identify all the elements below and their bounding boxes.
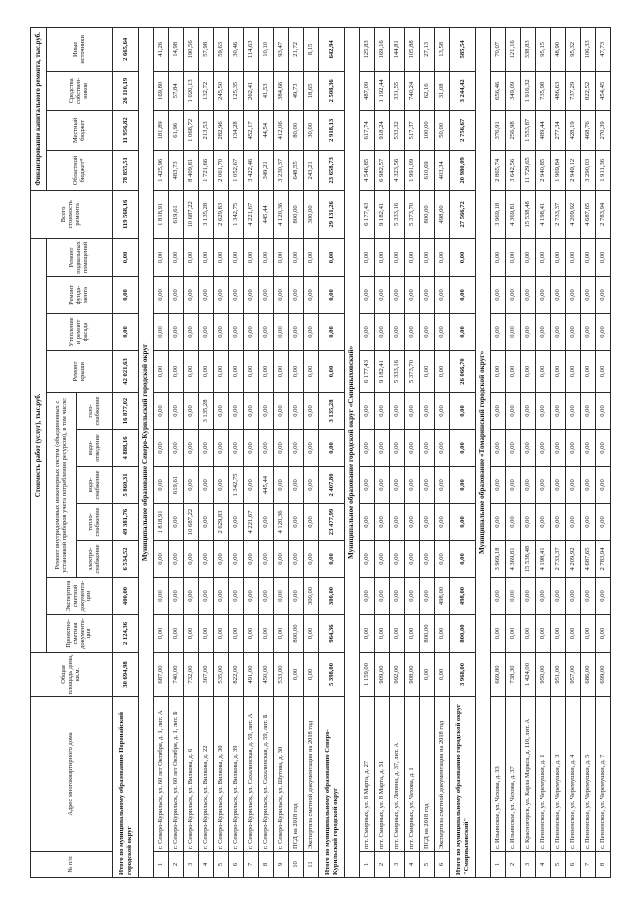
value-cell: 800,00 — [420, 190, 435, 238]
value-cell: 0,00 — [319, 351, 345, 393]
row-address: пгт. Смирных, ул. 8 Марта, д. 27 — [360, 697, 375, 852]
row-number: 4 — [536, 852, 551, 878]
value-cell: 0,00 — [199, 541, 214, 578]
value-cell: 0,00 — [169, 351, 184, 393]
col-header-total: Всего стоимость ремонта — [31, 190, 113, 238]
value-cell: 0,00 — [244, 238, 259, 276]
row-number: 4 — [405, 852, 420, 878]
value-cell: 0,00 — [304, 430, 319, 467]
value-cell: 4 120,36 — [274, 190, 289, 238]
value-cell: 0,00 — [229, 578, 244, 615]
col-header-num: № п/п — [31, 852, 113, 878]
value-cell: 0,00 — [390, 578, 405, 615]
value-cell: 0,00 — [184, 314, 199, 351]
value-cell: 4 369,81 — [506, 190, 521, 238]
data-row: 9г. Северо-Курильск, ул. Шутова, д. 3053… — [274, 27, 289, 877]
value-cell: 0,00 — [596, 615, 611, 653]
value-cell: 49,73 — [289, 71, 304, 110]
data-row: 3с. Красногорск, ул. Карла Маркса, д. 11… — [521, 27, 536, 877]
value-cell: 0,00 — [304, 277, 319, 314]
value-cell: 3 290,03 — [581, 150, 596, 190]
value-cell: 0,00 — [259, 578, 274, 615]
data-row: 4г. Северо-Курильск, ул. Вилкова, д. 223… — [199, 27, 214, 877]
value-cell: 0,00 — [184, 393, 199, 430]
data-row: 6Экспертиза сметной документации на 2018… — [435, 27, 450, 877]
value-cell: 0,00 — [304, 238, 319, 276]
value-cell: 2 407,80 — [319, 467, 345, 504]
col-header-water-disposal: водо-отведение — [77, 430, 113, 467]
value-cell: 0,00 — [274, 467, 289, 504]
value-cell: 0,00 — [551, 578, 566, 615]
col-header-psd: Проектно-сметная документа-ция — [47, 615, 113, 653]
value-cell: 23 477,99 — [319, 504, 345, 541]
value-cell: 0,00 — [420, 393, 435, 430]
value-cell: 0,00 — [274, 238, 289, 276]
value-cell: 0,00 — [229, 277, 244, 314]
value-cell: 0,00 — [450, 467, 476, 504]
value-cell: 4 221,67 — [244, 190, 259, 238]
value-cell: 0,00 — [169, 314, 184, 351]
value-cell: 0,00 — [491, 578, 506, 615]
value-cell: 2 124,36 — [113, 615, 139, 653]
col-header-facade: Утепление и ремонт фасада — [47, 314, 113, 351]
value-cell: 0,00 — [214, 238, 229, 276]
value-cell: 1 020,13 — [184, 71, 199, 110]
value-cell: 3 230,37 — [274, 150, 289, 190]
value-cell: 0,00 — [581, 615, 596, 653]
value-cell: 918,24 — [375, 110, 390, 150]
value-cell: 5 373,70 — [405, 190, 420, 238]
value-cell: 0,00 — [420, 653, 435, 697]
value-cell: 0,00 — [289, 238, 304, 276]
value-cell: 535,00 — [214, 653, 229, 697]
value-cell: 93,47 — [274, 27, 289, 71]
value-cell: 498,00 — [435, 190, 450, 238]
value-cell: 0,00 — [199, 430, 214, 467]
value-cell: 2 756,67 — [450, 110, 476, 150]
value-cell: 0,00 — [154, 430, 169, 467]
value-cell: 10 687,22 — [184, 190, 199, 238]
value-cell: 13,58 — [435, 27, 450, 71]
value-cell: 0,00 — [521, 578, 536, 615]
value-cell: 0,00 — [596, 238, 611, 276]
section-label: Муниципальное образование «Томаринский г… — [476, 27, 491, 877]
value-cell: 0,00 — [169, 430, 184, 467]
value-cell: 14,98 — [169, 27, 184, 71]
value-cell: 428,19 — [566, 110, 581, 150]
value-cell: 1 342,75 — [229, 467, 244, 504]
value-cell: 0,00 — [229, 430, 244, 467]
row-address: пгт. Смирных, ул. Ленина, д. 37, лит. А — [390, 697, 405, 852]
value-cell: 0,00 — [244, 467, 259, 504]
value-cell: 0,00 — [566, 238, 581, 276]
value-cell: 6 177,43 — [360, 190, 375, 238]
value-cell: 1 425,96 — [154, 150, 169, 190]
value-cell: 0,00 — [521, 615, 536, 653]
value-cell: 0,00 — [435, 615, 450, 653]
value-cell: 27,13 — [420, 27, 435, 71]
value-cell: 1 159,00 — [360, 653, 375, 697]
value-cell: 0,00 — [521, 314, 536, 351]
totals-label: Итого по муниципальному образованию Севе… — [319, 697, 345, 878]
value-cell: 245,50 — [214, 71, 229, 110]
value-cell: 0,00 — [506, 467, 521, 504]
col-header-basement: Ремонт подвальных помещений — [47, 238, 113, 276]
rotated-table-wrapper: № п/п Адрес многоквартирного дома Общая … — [30, 28, 610, 878]
value-cell: 0,00 — [184, 277, 199, 314]
value-cell: 0,00 — [581, 467, 596, 504]
value-cell: 0,00 — [304, 541, 319, 578]
row-number: 6 — [229, 852, 244, 878]
data-row: 2г. Северо-Курильск, ул. 60 лет Октября,… — [169, 27, 184, 877]
value-cell: 0,00 — [360, 467, 375, 504]
value-cell: 0,00 — [596, 430, 611, 467]
value-cell: 61,96 — [169, 110, 184, 150]
value-cell: 732,00 — [184, 653, 199, 697]
row-address: г. Северо-Курильск, ул. Сахалинская, д. … — [259, 697, 274, 852]
value-cell: 0,00 — [184, 430, 199, 467]
value-cell: 0,00 — [390, 430, 405, 467]
value-cell: 619,61 — [169, 467, 184, 504]
value-cell: 0,00 — [289, 314, 304, 351]
value-cell: 0,00 — [551, 314, 566, 351]
value-cell: 8 409,81 — [184, 150, 199, 190]
value-cell: 0,00 — [596, 467, 611, 504]
value-cell: 3 642,56 — [506, 150, 521, 190]
value-cell: 0,00 — [450, 541, 476, 578]
value-cell: 95,32 — [566, 27, 581, 71]
value-cell: 0,00 — [154, 467, 169, 504]
value-cell: 2 865,74 — [491, 150, 506, 190]
value-cell: 0,00 — [450, 238, 476, 276]
value-cell: 0,00 — [596, 393, 611, 430]
data-row: 5с. Пензенское, ул. Черемушки, д. 3951,0… — [551, 27, 566, 877]
value-cell: 735,98 — [536, 71, 551, 110]
value-cell: 16 877,02 — [113, 393, 139, 430]
value-cell: 0,00 — [154, 541, 169, 578]
value-cell: 0,00 — [169, 578, 184, 615]
value-cell: 3 969,18 — [491, 190, 506, 238]
totals-row: Итого по муниципальному образованию горо… — [450, 27, 476, 877]
value-cell: 0,00 — [566, 504, 581, 541]
value-cell: 21,72 — [289, 27, 304, 71]
value-cell: 10 687,22 — [184, 504, 199, 541]
row-address: г. Северо-Курильск, ул. Вилкова, д. 6 — [184, 697, 199, 852]
value-cell: 4 120,36 — [274, 504, 289, 541]
value-cell: 0,00 — [435, 393, 450, 430]
value-cell: 15 538,48 — [521, 190, 536, 238]
value-cell: 0,00 — [289, 277, 304, 314]
value-cell: 105,88 — [405, 27, 420, 71]
col-group-engineering: Ремонт внутридомовых инженерных систем (… — [47, 393, 77, 578]
value-cell: 1 052,67 — [229, 150, 244, 190]
value-cell: 0,00 — [360, 238, 375, 276]
value-cell: 0,00 — [184, 615, 199, 653]
value-cell: 0,00 — [491, 238, 506, 276]
value-cell: 0,00 — [420, 504, 435, 541]
value-cell: 0,00 — [405, 504, 420, 541]
value-cell: 4 221,67 — [244, 504, 259, 541]
value-cell: 0,00 — [405, 393, 420, 430]
data-row: 8г. Северо-Курильск, ул. Сахалинская, д.… — [259, 27, 274, 877]
value-cell: 533,00 — [274, 653, 289, 697]
value-cell: 0,00 — [289, 541, 304, 578]
value-cell: 610,69 — [420, 150, 435, 190]
value-cell: 331,55 — [390, 71, 405, 110]
table-header: № п/п Адрес многоквартирного дома Общая … — [31, 27, 113, 877]
row-address: с. Ильинское, ул. Чехова, д. 33 — [491, 697, 506, 852]
value-cell: 800,00 — [450, 615, 476, 653]
value-cell: 300,00 — [304, 578, 319, 615]
value-cell: 0,00 — [375, 615, 390, 653]
value-cell: 0,00 — [184, 238, 199, 276]
value-cell: 0,00 — [491, 314, 506, 351]
value-cell: 3 135,28 — [199, 190, 214, 238]
value-cell: 0,00 — [506, 277, 521, 314]
data-row: 1пгт. Смирных, ул. 8 Марта, д. 271 159,0… — [360, 27, 375, 877]
value-cell: 483,73 — [169, 150, 184, 190]
value-cell: 0,00 — [274, 578, 289, 615]
value-cell: 0,00 — [274, 541, 289, 578]
value-cell: 0,00 — [375, 541, 390, 578]
value-cell: 0,00 — [420, 314, 435, 351]
value-cell: 0,00 — [274, 277, 289, 314]
value-cell: 367,00 — [199, 653, 214, 697]
value-cell: 1 818,91 — [154, 190, 169, 238]
value-cell: 0,00 — [360, 504, 375, 541]
value-cell: 822,52 — [581, 71, 596, 110]
value-cell: 0,00 — [405, 314, 420, 351]
value-cell: 0,00 — [360, 541, 375, 578]
value-cell: 0,00 — [199, 277, 214, 314]
value-cell: 486,63 — [551, 71, 566, 110]
value-cell: 1 916,32 — [521, 71, 536, 110]
value-cell: 0,00 — [199, 467, 214, 504]
value-cell: 0,00 — [214, 467, 229, 504]
value-cell: 0,00 — [405, 277, 420, 314]
value-cell: 23 658,73 — [319, 150, 345, 190]
value-cell: 0,00 — [491, 277, 506, 314]
value-cell: 0,00 — [169, 277, 184, 314]
value-cell: 0,00 — [184, 578, 199, 615]
row-address: г. Северо-Курильск, ул. Вилкова, д. 30 — [214, 697, 229, 852]
value-cell: 0,00 — [154, 615, 169, 653]
value-cell: 0,00 — [521, 467, 536, 504]
value-cell: 300,00 — [319, 578, 345, 615]
data-row: 4пгт. Смирных, ул. Чехова, д. 1908,000,0… — [405, 27, 420, 877]
value-cell: 4 888,16 — [113, 430, 139, 467]
value-cell: 0,00 — [184, 541, 199, 578]
value-cell: 190,56 — [184, 27, 199, 71]
value-cell: 0,00 — [289, 504, 304, 541]
value-cell: 0,00 — [360, 430, 375, 467]
row-number: 11 — [304, 852, 319, 878]
value-cell: 0,00 — [521, 393, 536, 430]
data-row: 7с. Пензенское, ул. Черемушки, д. 5686,0… — [581, 27, 596, 877]
row-address: г. Северо-Курильск, ул. Шутова, д. 30 — [274, 697, 289, 852]
value-cell: 0,00 — [360, 615, 375, 653]
value-cell: 0,00 — [274, 314, 289, 351]
value-cell: 0,00 — [521, 277, 536, 314]
row-address: пгт. Смирных, ул. Чехова, д. 1 — [405, 697, 420, 852]
row-address: г. Северо-Курильск, ул. Сахалинская, д. … — [244, 697, 259, 852]
row-address: с. Пензенское, ул. Черемушки, д. 4 — [566, 697, 581, 852]
value-cell: 908,00 — [405, 653, 420, 697]
value-cell: 822,00 — [229, 653, 244, 697]
value-cell: 468,76 — [581, 110, 596, 150]
value-cell: 0,00 — [304, 393, 319, 430]
value-cell: 0,00 — [360, 393, 375, 430]
value-cell: 0,00 — [450, 277, 476, 314]
row-address: г. Северо-Курильск, ул. 60 лет Октября, … — [169, 697, 184, 852]
value-cell: 48,90 — [551, 27, 566, 71]
value-cell: 0,00 — [581, 351, 596, 393]
value-cell: 0,00 — [435, 504, 450, 541]
value-cell: 5 860,31 — [113, 467, 139, 504]
value-cell: 0,00 — [244, 351, 259, 393]
value-cell: 0,00 — [435, 238, 450, 276]
section-row: Муниципальное образование Северо-Курильс… — [139, 27, 154, 877]
value-cell: 0,00 — [375, 430, 390, 467]
value-cell: 4 546,85 — [360, 150, 375, 190]
value-cell: 1 818,91 — [154, 504, 169, 541]
row-number: 6 — [566, 852, 581, 878]
value-cell: 2 508,36 — [319, 71, 345, 110]
value-cell: 20 980,09 — [450, 150, 476, 190]
value-cell: 4 198,41 — [536, 541, 551, 578]
value-cell: 686,00 — [581, 653, 596, 697]
value-cell: 29 131,26 — [319, 190, 345, 238]
value-cell: 0,00 — [154, 238, 169, 276]
value-cell: 0,00 — [405, 615, 420, 653]
value-cell: 0,00 — [319, 277, 345, 314]
value-cell: 0,00 — [581, 393, 596, 430]
value-cell: 957,00 — [566, 653, 581, 697]
value-cell: 1 911,36 — [596, 150, 611, 190]
value-cell: 0,00 — [435, 541, 450, 578]
value-cell: 2 629,83 — [214, 504, 229, 541]
value-cell: 0,00 — [551, 393, 566, 430]
value-cell: 0,00 — [199, 351, 214, 393]
value-cell: 0,00 — [214, 351, 229, 393]
value-cell: 0,00 — [154, 277, 169, 314]
row-number: 8 — [259, 852, 274, 878]
value-cell: 0,00 — [596, 277, 611, 314]
value-cell: 0,00 — [214, 393, 229, 430]
value-cell: 0,00 — [491, 467, 506, 504]
value-cell: 737,29 — [566, 71, 581, 110]
col-header-address: Адрес многоквартирного дома — [31, 697, 113, 852]
value-cell: 0,00 — [581, 578, 596, 615]
value-cell: 0,00 — [521, 504, 536, 541]
value-cell: 134,28 — [229, 110, 244, 150]
value-cell: 0,00 — [566, 314, 581, 351]
value-cell: 0,00 — [450, 430, 476, 467]
value-cell: 585,54 — [450, 27, 476, 71]
value-cell: 0,00 — [259, 541, 274, 578]
value-cell: 270,39 — [596, 110, 611, 150]
value-cell: 0,00 — [169, 541, 184, 578]
value-cell: 0,00 — [199, 615, 214, 653]
value-cell: 699,00 — [596, 653, 611, 697]
row-number: 1 — [154, 852, 169, 878]
value-cell: 0,00 — [259, 615, 274, 653]
table-body: Итого по муниципальному образованию Поро… — [113, 27, 611, 877]
data-row: 5ПСД на 2018 год0,00800,000,000,000,000,… — [420, 27, 435, 877]
value-cell: 300,00 — [304, 190, 319, 238]
value-cell: 0,00 — [199, 578, 214, 615]
value-cell: 2 733,37 — [551, 541, 566, 578]
value-cell: 0,00 — [566, 430, 581, 467]
data-row: 8с. Пензенское, ул. Черемушки, д. 7699,0… — [596, 27, 611, 877]
value-cell: 412,06 — [274, 110, 289, 150]
value-cell: 656,46 — [491, 71, 506, 110]
value-cell: 282,96 — [214, 110, 229, 150]
value-cell: 0,00 — [435, 430, 450, 467]
value-cell: 0,00 — [154, 314, 169, 351]
value-cell: 262,41 — [244, 71, 259, 110]
value-cell: 1 721,66 — [199, 150, 214, 190]
col-header-roof: Ремонт крыши — [47, 351, 113, 393]
value-cell: 0,00 — [506, 504, 521, 541]
row-address: с. Ильинское, ул. Чехова, д. 37 — [506, 697, 521, 852]
data-row: 1г. Северо-Курильск, ул. 60 лет Октября,… — [154, 27, 169, 877]
value-cell: 489,44 — [536, 110, 551, 150]
value-cell: 0,00 — [289, 467, 304, 504]
value-cell: 619,61 — [169, 190, 184, 238]
value-cell: 0,00 — [184, 467, 199, 504]
row-number: 6 — [435, 852, 450, 878]
value-cell: 0,00 — [169, 238, 184, 276]
value-cell: 0,00 — [536, 578, 551, 615]
col-header-local-budget: Местный бюджет — [47, 110, 113, 150]
value-cell: 0,00 — [506, 393, 521, 430]
value-cell: 41,26 — [154, 27, 169, 71]
totals-label: Итого по муниципальному образованию Поро… — [113, 697, 139, 878]
value-cell: 0,00 — [229, 351, 244, 393]
value-cell: 0,00 — [259, 238, 274, 276]
value-cell: 0,00 — [536, 615, 551, 653]
value-cell: 740,24 — [405, 71, 420, 110]
value-cell: 642,94 — [319, 27, 345, 71]
value-cell: 0,00 — [581, 504, 596, 541]
value-cell: 0,00 — [420, 541, 435, 578]
value-cell: 0,00 — [229, 393, 244, 430]
value-cell: 0,00 — [259, 277, 274, 314]
value-cell: 132,72 — [199, 71, 214, 110]
value-cell: 31,08 — [435, 71, 450, 110]
row-number: 7 — [581, 852, 596, 878]
value-cell: 3 969,18 — [491, 541, 506, 578]
value-cell: 0,00 — [435, 277, 450, 314]
value-cell: 1 991,09 — [405, 150, 420, 190]
value-cell: 2 629,83 — [214, 190, 229, 238]
value-cell: 498,00 — [450, 578, 476, 615]
row-number: 9 — [274, 852, 289, 878]
value-cell: 0,00 — [289, 578, 304, 615]
value-cell: 0,00 — [244, 430, 259, 467]
col-header-other-sources: Иные источники — [47, 27, 113, 71]
value-cell: 4 323,56 — [390, 150, 405, 190]
value-cell: 0,00 — [214, 277, 229, 314]
value-cell: 687,00 — [154, 653, 169, 697]
data-row: 7г. Северо-Курильск, ул. Сахалинская, д.… — [244, 27, 259, 877]
value-cell: 0,00 — [420, 578, 435, 615]
value-cell: 2 783,94 — [596, 541, 611, 578]
col-header-foundation: Ремонт фунда-мента — [47, 277, 113, 314]
value-cell: 2 940,85 — [536, 150, 551, 190]
row-address: с. Пензенское, ул. Черемушки, д. 5 — [581, 697, 596, 852]
